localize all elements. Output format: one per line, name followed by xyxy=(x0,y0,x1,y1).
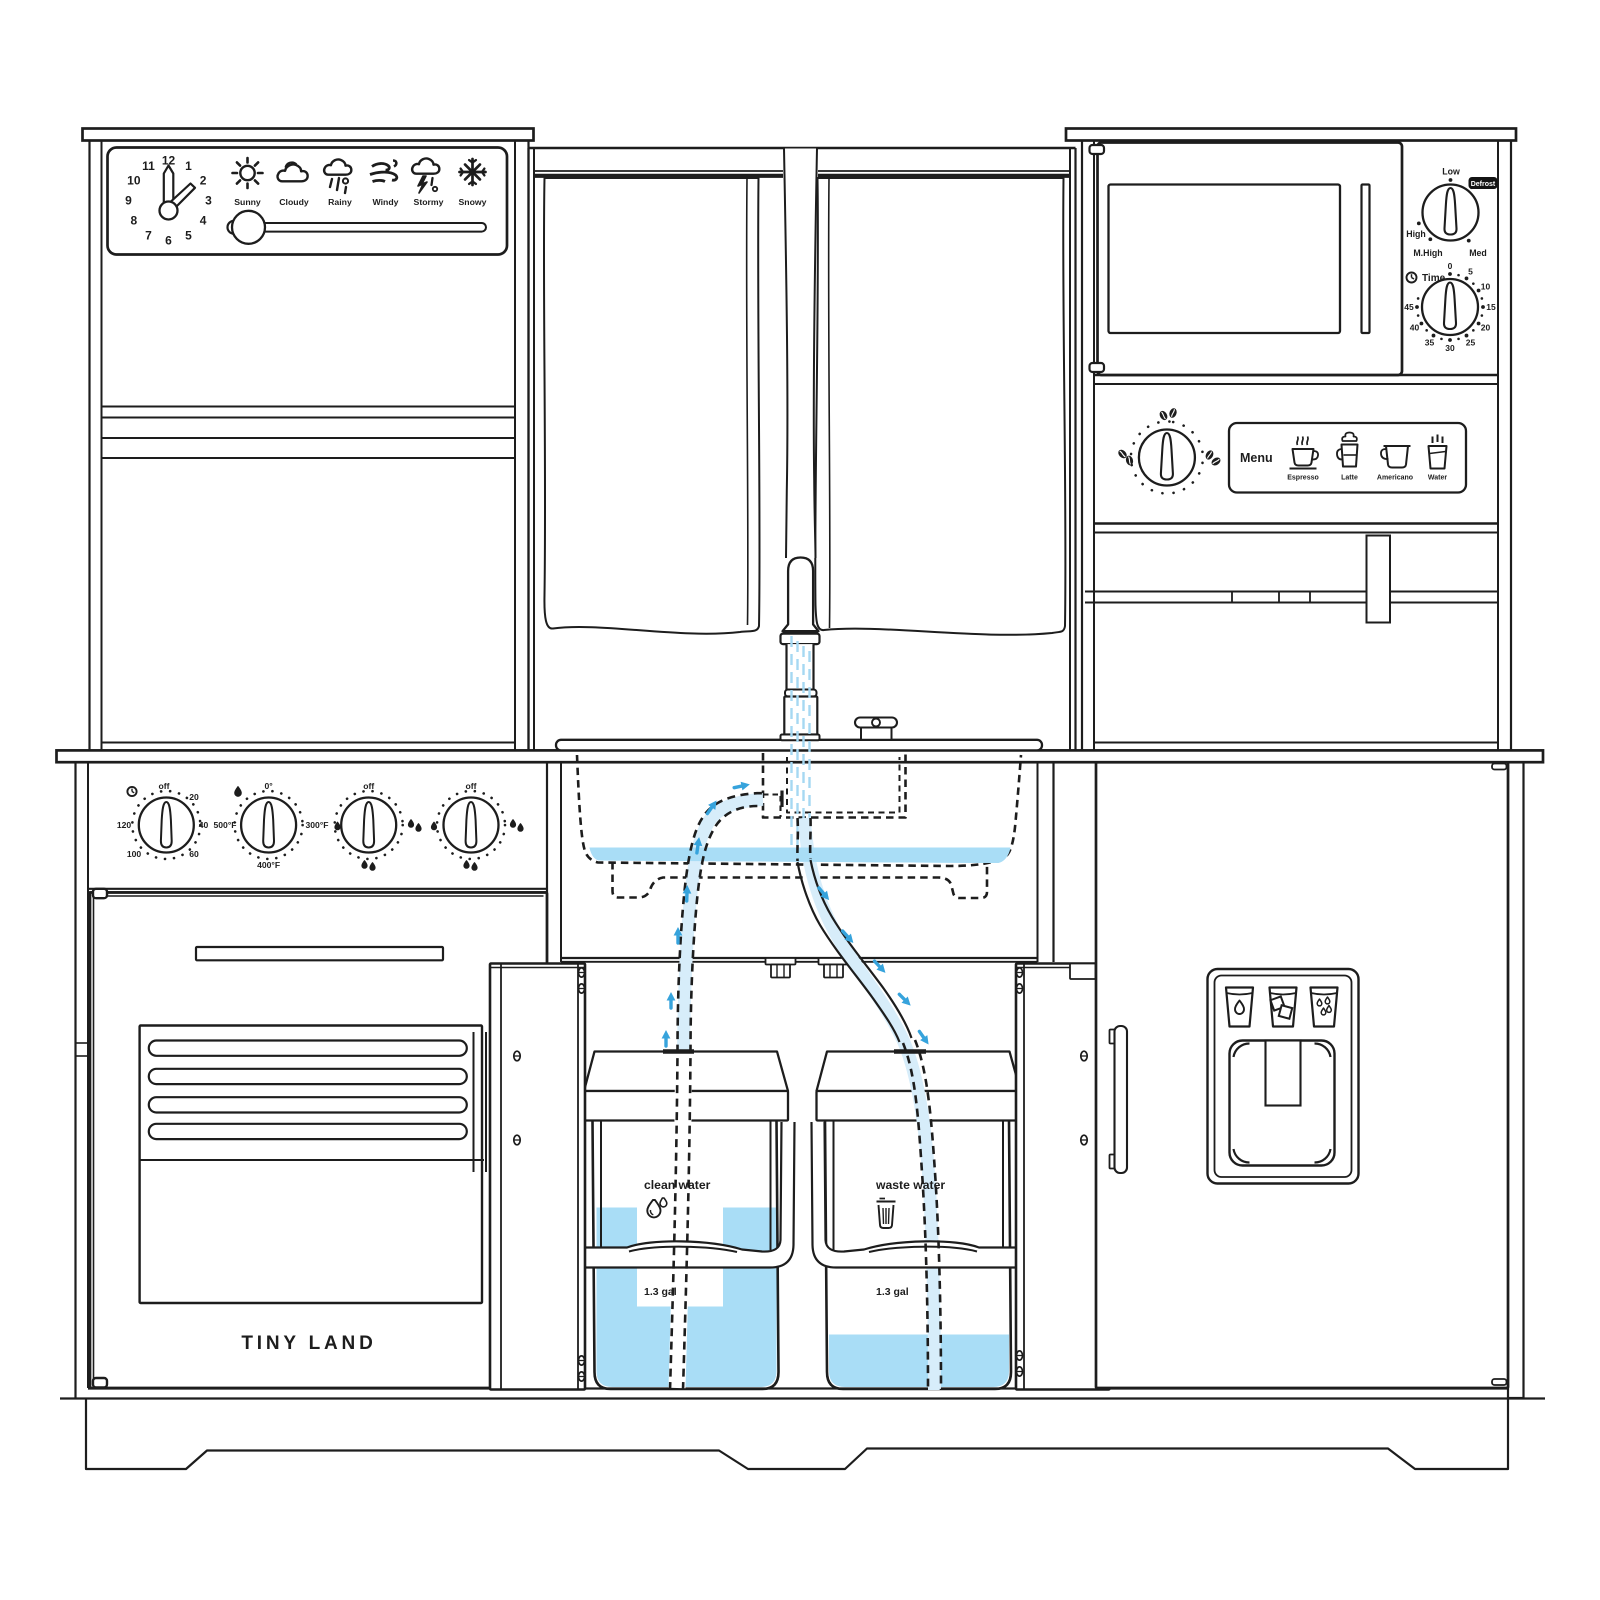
svg-text:Windy: Windy xyxy=(373,197,399,207)
svg-text:9: 9 xyxy=(125,194,132,208)
svg-text:300°F: 300°F xyxy=(306,820,329,830)
svg-text:2: 2 xyxy=(200,174,207,188)
svg-text:8: 8 xyxy=(131,214,138,228)
svg-text:0: 0 xyxy=(1448,261,1453,271)
svg-text:Rainy: Rainy xyxy=(328,197,352,207)
svg-text:off: off xyxy=(466,781,477,791)
svg-text:1.3 gal: 1.3 gal xyxy=(876,1286,909,1298)
svg-text:High: High xyxy=(1406,229,1426,239)
svg-text:0°: 0° xyxy=(264,781,273,791)
svg-text:Med: Med xyxy=(1469,248,1487,258)
svg-text:Menu: Menu xyxy=(1240,451,1273,465)
svg-text:M.High: M.High xyxy=(1413,248,1442,258)
svg-text:500°F: 500°F xyxy=(214,820,237,830)
svg-text:3: 3 xyxy=(205,194,212,208)
svg-text:4: 4 xyxy=(200,214,207,228)
svg-text:6: 6 xyxy=(165,234,172,248)
svg-text:120: 120 xyxy=(117,820,132,830)
svg-text:40: 40 xyxy=(1410,323,1420,333)
svg-text:Espresso: Espresso xyxy=(1287,475,1319,482)
svg-text:15: 15 xyxy=(1486,302,1496,312)
svg-text:Cloudy: Cloudy xyxy=(279,197,309,207)
svg-text:clean water: clean water xyxy=(644,1178,711,1192)
svg-text:100: 100 xyxy=(127,849,142,859)
svg-text:10: 10 xyxy=(1481,282,1491,292)
svg-text:off: off xyxy=(159,781,170,791)
svg-text:45: 45 xyxy=(1404,302,1414,312)
svg-text:Defrost: Defrost xyxy=(1471,181,1496,188)
svg-text:Americano: Americano xyxy=(1377,475,1413,482)
svg-text:35: 35 xyxy=(1425,338,1435,348)
svg-text:Sunny: Sunny xyxy=(234,197,261,207)
svg-text:off: off xyxy=(363,781,374,791)
svg-text:10: 10 xyxy=(127,174,141,188)
svg-text:400°F: 400°F xyxy=(257,860,280,870)
svg-text:7: 7 xyxy=(145,228,152,242)
svg-text:TINY LAND: TINY LAND xyxy=(241,1333,376,1354)
svg-text:20: 20 xyxy=(1481,323,1491,333)
svg-text:1: 1 xyxy=(185,159,192,173)
svg-text:Low: Low xyxy=(1442,167,1460,177)
svg-text:Water: Water xyxy=(1428,475,1447,482)
svg-text:5: 5 xyxy=(1468,267,1473,277)
svg-text:60: 60 xyxy=(189,849,199,859)
svg-text:40: 40 xyxy=(199,820,209,830)
svg-text:30: 30 xyxy=(1445,343,1455,353)
svg-text:Stormy: Stormy xyxy=(414,197,444,207)
svg-text:Latte: Latte xyxy=(1341,475,1358,482)
svg-text:11: 11 xyxy=(142,159,155,173)
svg-text:5: 5 xyxy=(185,228,192,242)
svg-text:25: 25 xyxy=(1466,338,1476,348)
svg-text:Snowy: Snowy xyxy=(459,197,487,207)
svg-text:20: 20 xyxy=(189,792,199,802)
